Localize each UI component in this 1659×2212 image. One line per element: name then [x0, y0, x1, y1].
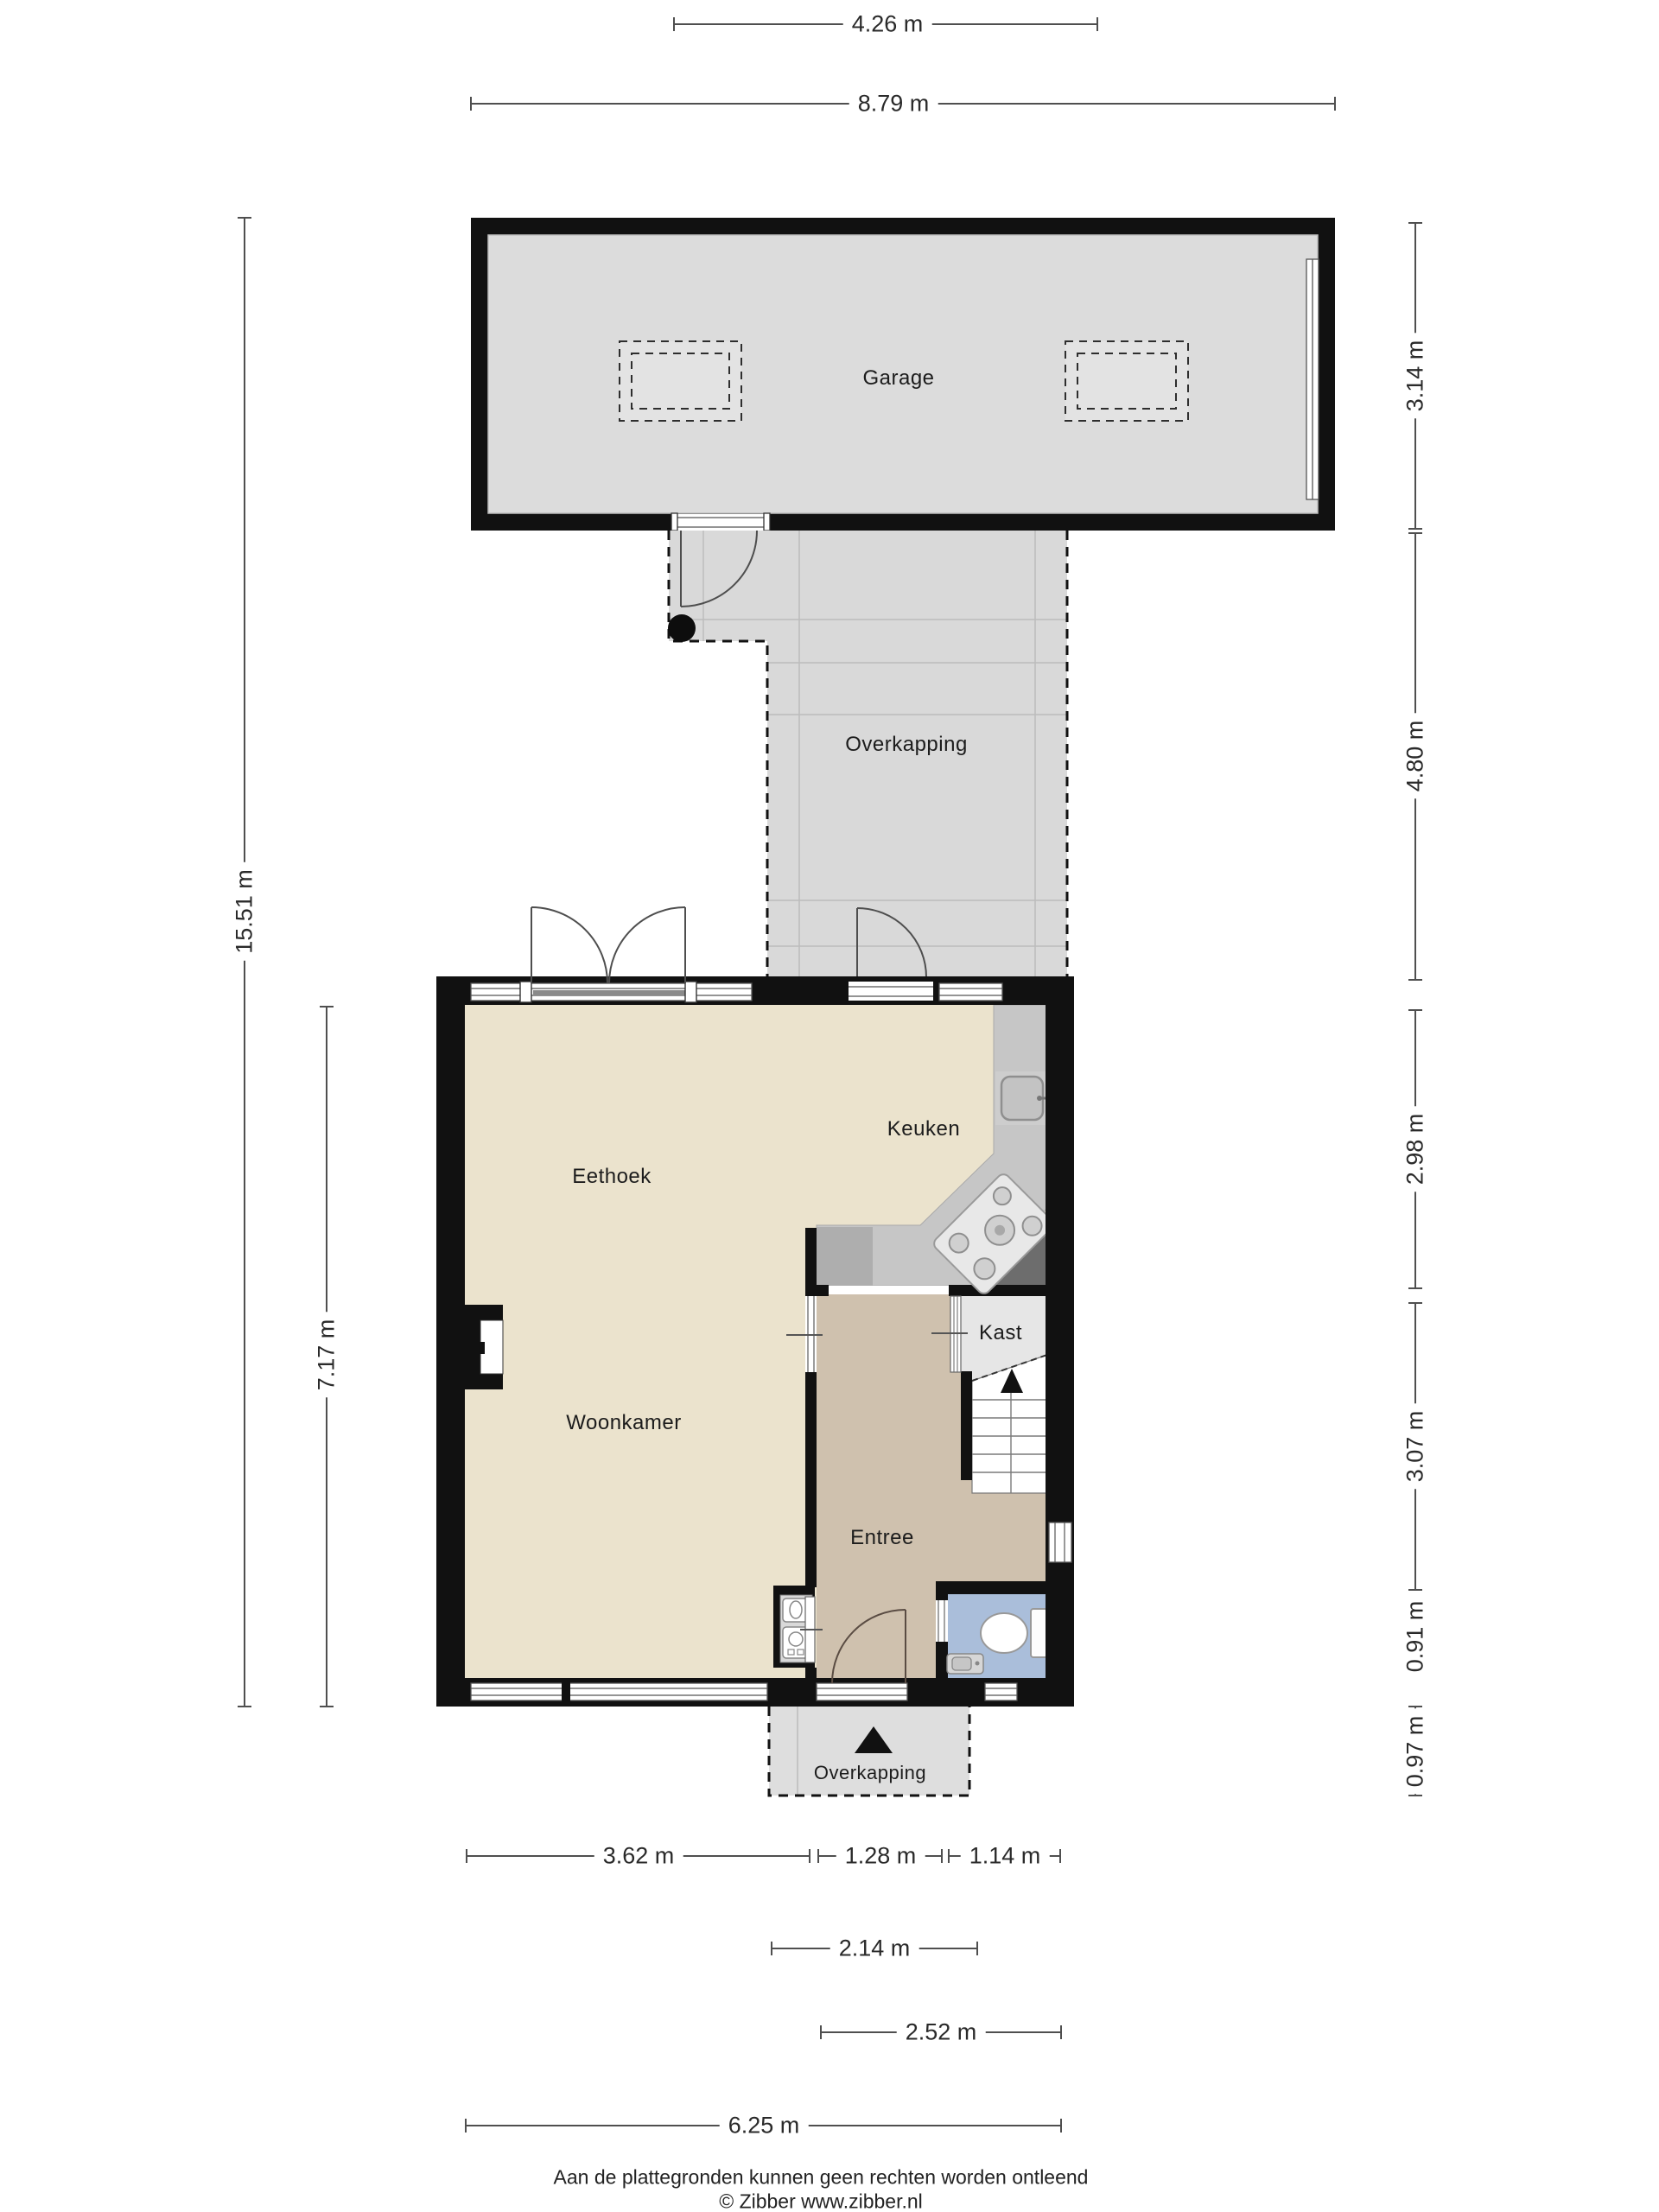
room-label-overkapping-bottom: Overkapping [814, 1762, 926, 1784]
dim-right-1: 3.14 m [1402, 334, 1429, 419]
dim-bottom-5: 2.52 m [897, 2019, 986, 2046]
room-label-keuken: Keuken [887, 1117, 960, 1141]
toilet-icon [981, 1609, 1047, 1657]
kitchen-counter-cabinet [817, 1227, 873, 1286]
garage-skylight-left [620, 341, 741, 421]
garage-skylight-right [1065, 341, 1188, 421]
dim-left-1: 15.51 m [232, 862, 258, 961]
toilet-door [936, 1600, 948, 1642]
room-label-garage: Garage [862, 366, 934, 391]
footer-disclaimer: Aan de plattegronden kunnen geen rechten… [554, 2166, 1089, 2190]
window-icon [985, 1683, 1017, 1700]
fireplace-flue [465, 1305, 503, 1389]
floorplan-page: Garage Overkapping Eethoek Keuken Woonka… [0, 0, 1659, 2212]
dim-right-5: 0.91 m [1402, 1594, 1429, 1680]
dim-bottom-6: 6.25 m [720, 2113, 809, 2139]
dim-top-2: 8.79 m [849, 91, 938, 118]
dim-right-2: 4.80 m [1402, 714, 1429, 799]
room-label-kast: Kast [979, 1321, 1022, 1345]
dim-top-1: 4.26 m [843, 11, 932, 38]
footer-credit: © Zibber www.zibber.nl [719, 2190, 923, 2212]
window-mullion [562, 1681, 570, 1702]
dim-bottom-2: 1.28 m [836, 1843, 925, 1870]
garage-door-opening [671, 513, 770, 531]
tree-icon [668, 614, 696, 642]
kitchen-sink-icon [995, 1071, 1050, 1125]
garage-window-icon [1306, 259, 1319, 499]
dim-left-2: 7.17 m [314, 1313, 340, 1398]
french-door-sill [533, 990, 685, 995]
window-icon [471, 1683, 767, 1700]
room-label-overkapping-top: Overkapping [845, 733, 968, 757]
keuken-door-opening [849, 982, 933, 1001]
dim-bottom-3: 1.14 m [961, 1843, 1050, 1870]
dim-right-4: 3.07 m [1402, 1404, 1429, 1490]
dim-bottom-1: 3.62 m [594, 1843, 683, 1870]
counter-front-edge [827, 1286, 949, 1294]
french-doors-swing [531, 907, 685, 983]
dim-right-6: 0.97 m [1402, 1709, 1429, 1795]
hand-basin-icon [947, 1654, 983, 1674]
dim-bottom-4: 2.14 m [830, 1935, 919, 1962]
front-door-opening [817, 1683, 907, 1700]
room-label-eethoek: Eethoek [572, 1165, 652, 1189]
window-icon [939, 983, 1002, 1001]
room-label-woonkamer: Woonkamer [566, 1411, 681, 1435]
room-label-entree: Entree [850, 1526, 914, 1550]
right-wall-window [1049, 1522, 1071, 1562]
dim-right-3: 2.98 m [1402, 1107, 1429, 1192]
